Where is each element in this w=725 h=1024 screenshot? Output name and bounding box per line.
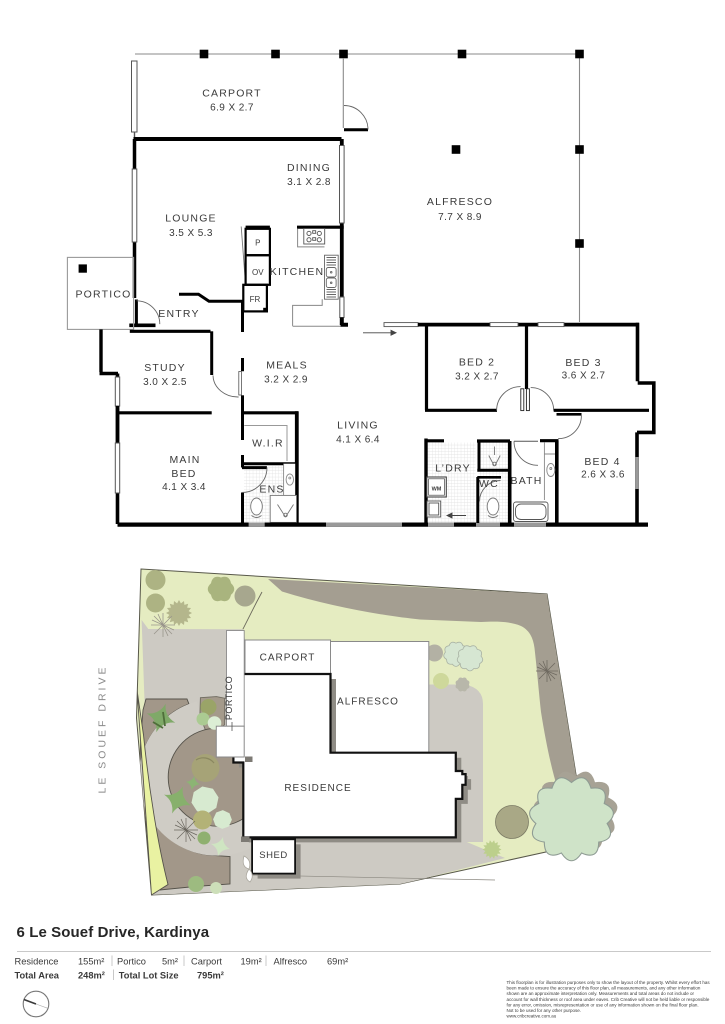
svg-text:MEALS: MEALS [266,360,308,372]
svg-text:FR: FR [250,295,261,304]
svg-text:5m²: 5m² [162,957,178,967]
svg-text:shown are an approximate inter: shown are an approximate interpretation … [507,991,695,996]
svg-text:155m²: 155m² [78,957,104,967]
svg-text:STUDY: STUDY [144,362,186,374]
svg-text:ALFRESCO: ALFRESCO [337,697,399,708]
svg-text:69m²: 69m² [327,957,348,967]
svg-text:LIVING: LIVING [337,420,379,432]
svg-text:BATH: BATH [510,475,542,487]
svg-text:3.0 X 2.5: 3.0 X 2.5 [143,377,187,388]
svg-text:CARPORT: CARPORT [202,88,262,100]
svg-text:W.I.R: W.I.R [252,438,284,450]
svg-text:L’DRY: L’DRY [435,463,471,475]
svg-text:7.7 X 8.9: 7.7 X 8.9 [438,212,482,223]
svg-text:for any error, omission, misre: for any error, omission, misrepresentati… [507,1002,699,1007]
svg-text:3.5 X 5.3: 3.5 X 5.3 [169,228,213,239]
svg-text:2.6 X 3.6: 2.6 X 3.6 [581,470,625,481]
svg-text:795m²: 795m² [197,971,224,981]
svg-text:BED: BED [171,468,196,480]
svg-text:PORTICO: PORTICO [224,676,234,720]
svg-text:PORTICO: PORTICO [75,289,131,301]
svg-text:Total Area: Total Area [15,971,60,981]
svg-text:RESIDENCE: RESIDENCE [284,783,351,794]
svg-text:BED 2: BED 2 [459,357,495,369]
svg-text:account for wall thickness or: account for wall thickness or roof area … [507,997,710,1002]
svg-text:ENS: ENS [259,484,284,496]
svg-text:This floorplan is for illustra: This floorplan is for illustration purpo… [507,980,711,985]
svg-text:3.1 X 2.8: 3.1 X 2.8 [287,177,331,188]
svg-text:LE SOUEF DRIVE: LE SOUEF DRIVE [97,665,109,794]
svg-text:DINING: DINING [287,162,331,174]
svg-text:KITCHEN: KITCHEN [270,266,325,278]
svg-text:Portico: Portico [117,957,146,967]
svg-text:6.9 X 2.7: 6.9 X 2.7 [210,103,254,114]
svg-text:Total Lot Size: Total Lot Size [119,971,179,981]
svg-text:Not to be used for any other p: Not to be used for any other purpose. [507,1008,582,1013]
svg-text:Alfresco: Alfresco [274,957,308,967]
svg-text:4.1 X 3.4: 4.1 X 3.4 [162,482,206,493]
svg-text:BED 4: BED 4 [584,456,620,468]
svg-text:WM: WM [432,487,442,493]
svg-text:3.6 X 2.7: 3.6 X 2.7 [562,371,606,382]
svg-text:WC: WC [479,478,499,490]
svg-text:3.2 X 2.9: 3.2 X 2.9 [264,375,308,386]
svg-text:MAIN: MAIN [169,454,200,466]
svg-text:BED 3: BED 3 [565,357,601,369]
svg-text:CARPORT: CARPORT [260,653,316,664]
svg-text:ALFRESCO: ALFRESCO [427,196,493,208]
svg-text:Residence: Residence [15,957,59,967]
svg-text:P: P [255,239,260,248]
svg-text:4.1 X 6.4: 4.1 X 6.4 [336,435,380,446]
svg-text:3.2 X 2.7: 3.2 X 2.7 [455,372,499,383]
svg-text:OV: OV [252,268,264,277]
svg-text:www.cribcreative.com.au: www.cribcreative.com.au [507,1014,557,1019]
svg-text:248m²: 248m² [78,971,105,981]
svg-text:ENTRY: ENTRY [158,308,199,320]
svg-text:Carport: Carport [191,957,222,967]
svg-text:19m²: 19m² [241,957,262,967]
svg-text:LOUNGE: LOUNGE [165,213,217,225]
svg-text:6 Le Souef Drive, Kardinya: 6 Le Souef Drive, Kardinya [17,924,210,941]
svg-text:SHED: SHED [259,850,287,861]
svg-text:been made to ensure the accura: been made to ensure the accuracy of this… [507,986,701,991]
